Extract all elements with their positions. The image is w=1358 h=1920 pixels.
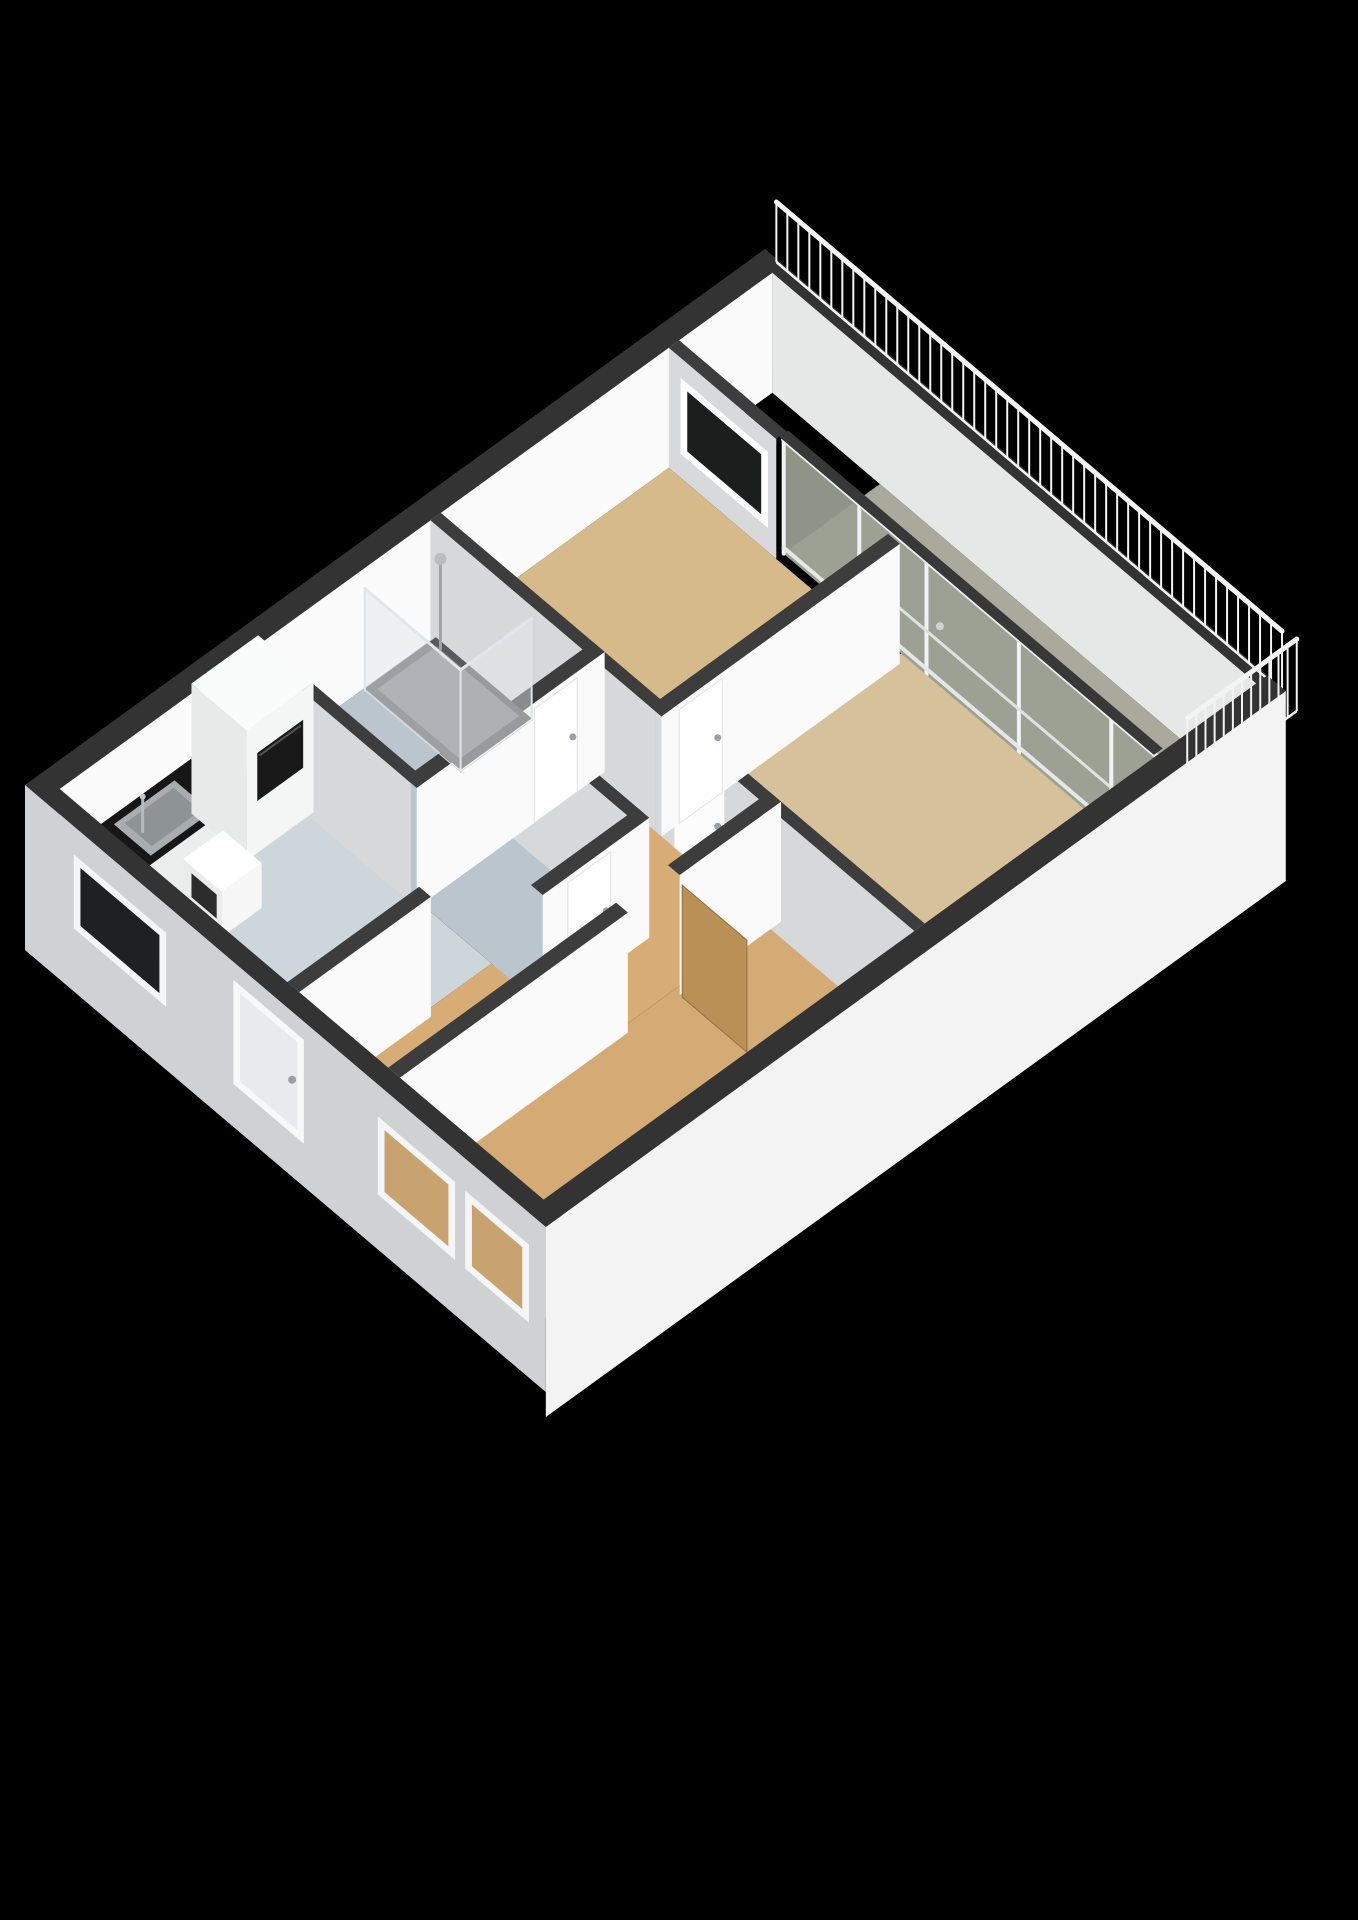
floorplan-stage (0, 0, 1358, 1920)
shower-head (434, 553, 446, 565)
floorplan-3d-render (0, 0, 1358, 1920)
bedroom1-door-handle (714, 734, 721, 741)
balcony-door-handle (936, 622, 944, 630)
kitchen-faucet-head (140, 793, 146, 799)
front-door-handle (288, 1076, 296, 1084)
bathroom-door-handle (569, 733, 576, 740)
